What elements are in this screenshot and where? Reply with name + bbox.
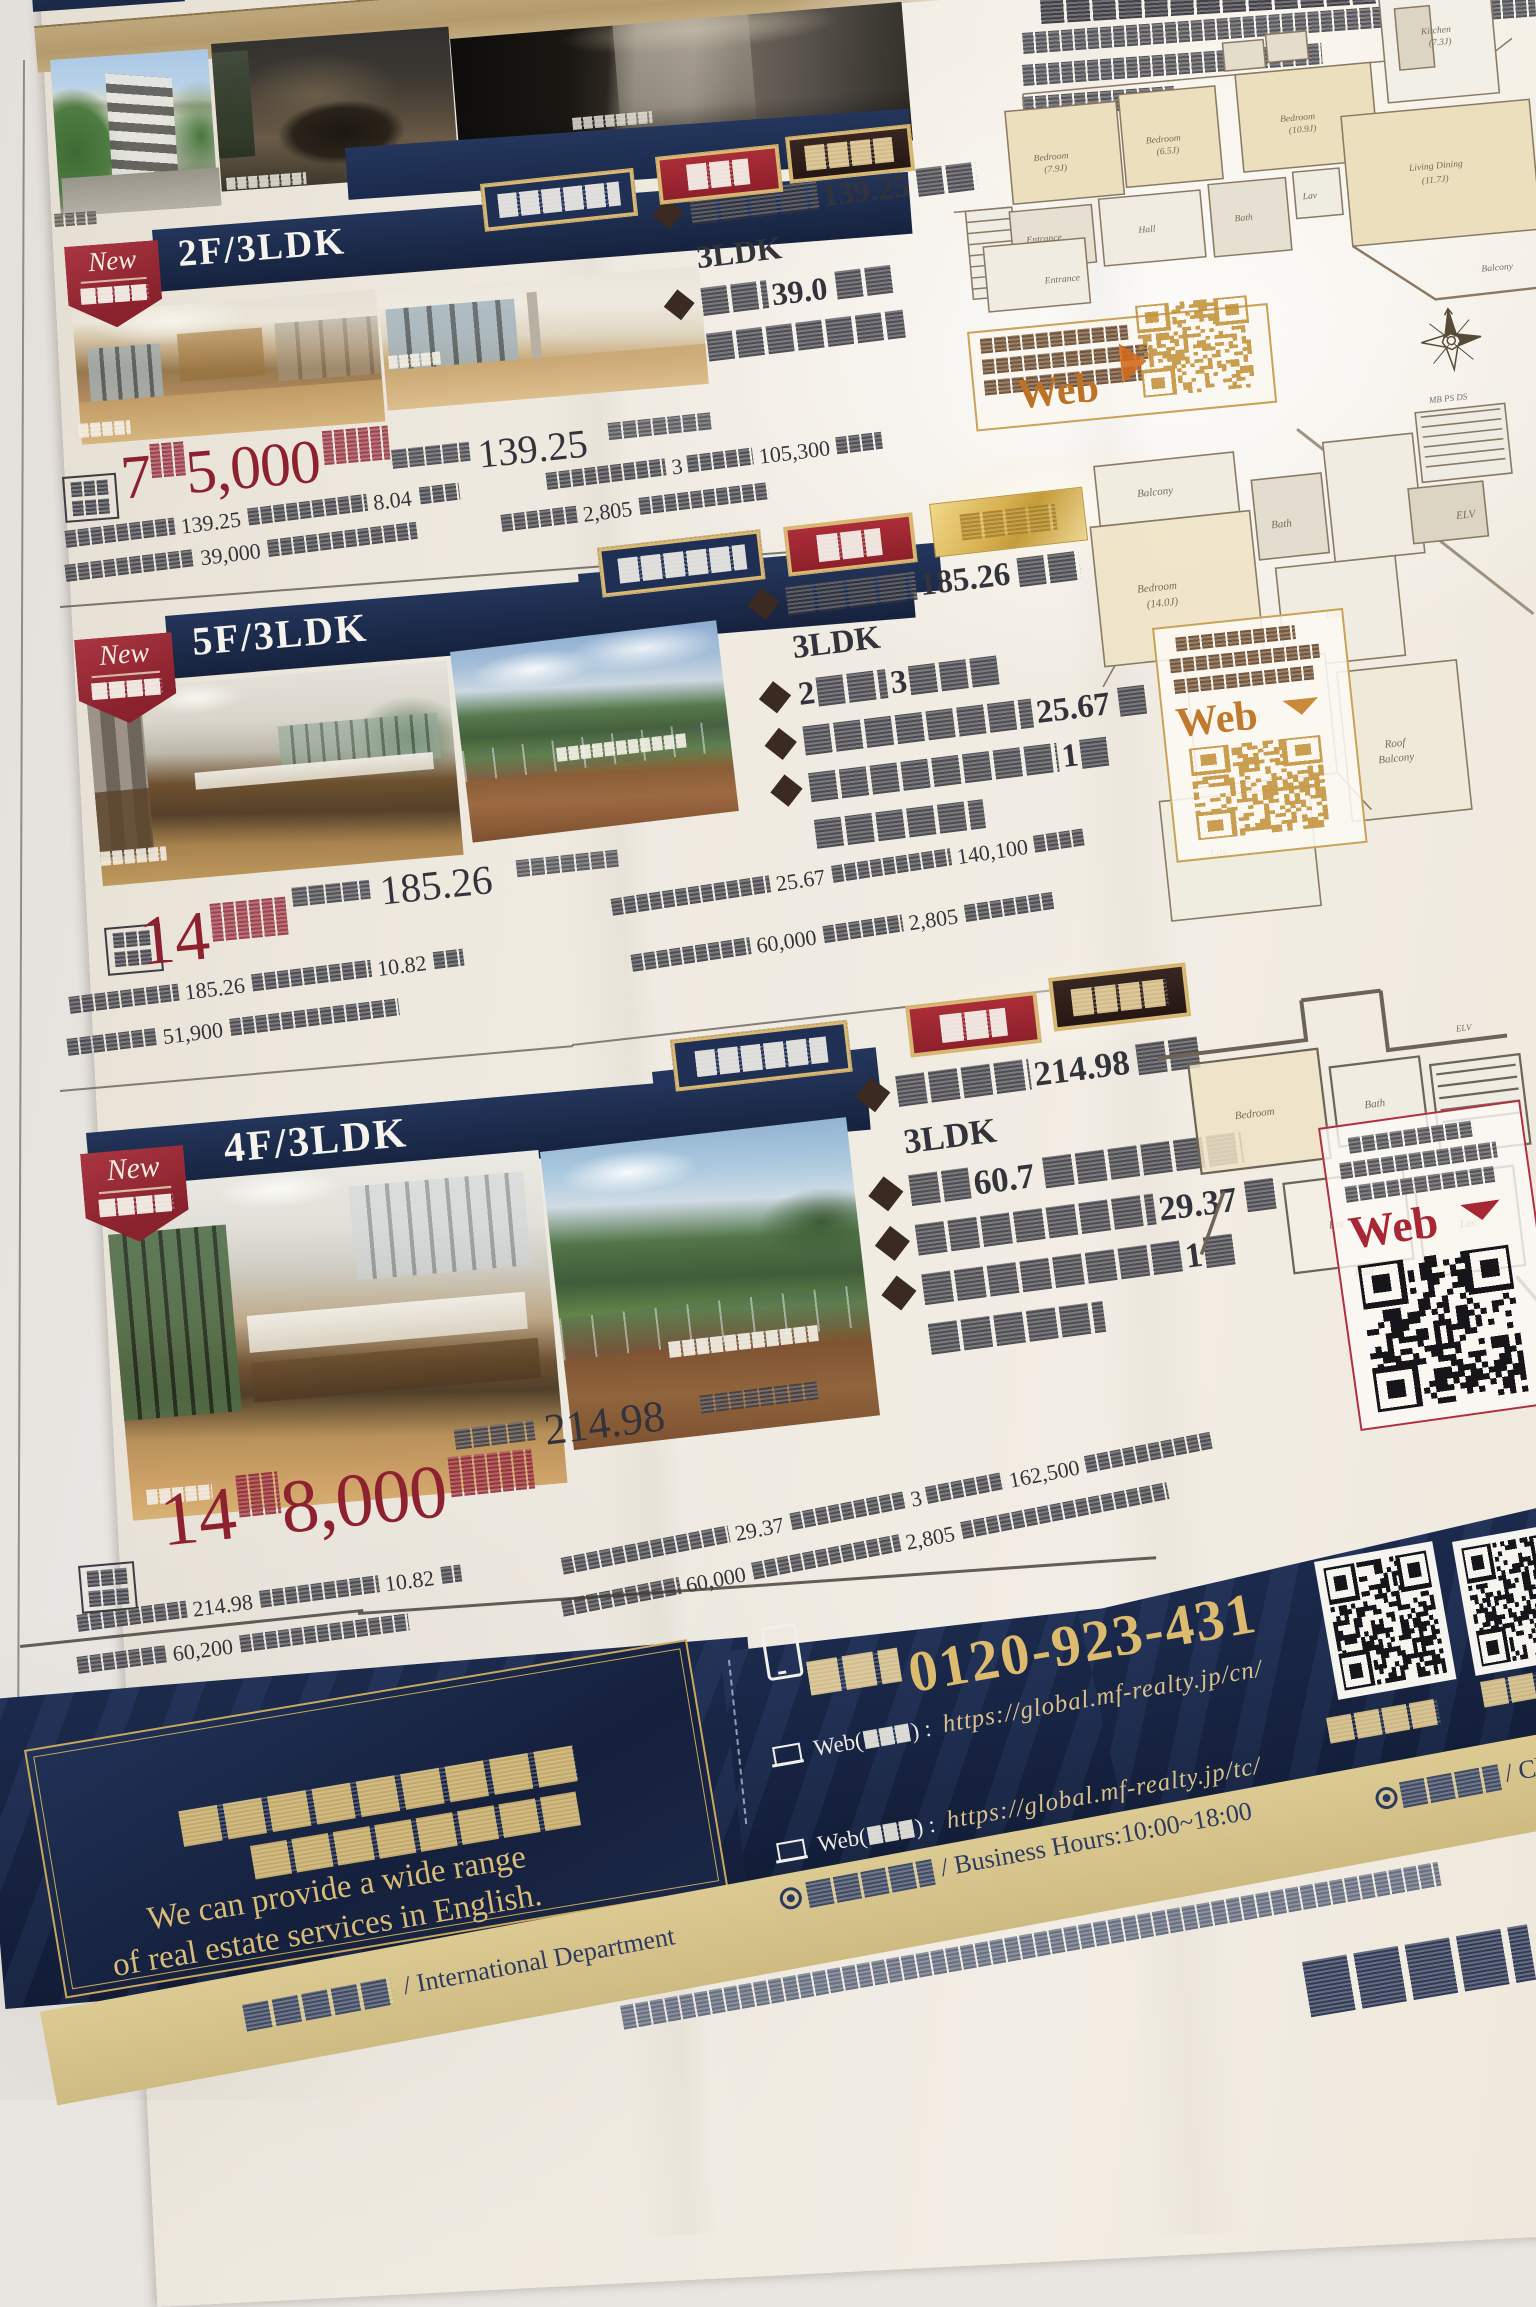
svg-text:MB PS DS: MB PS DS <box>1427 391 1468 405</box>
svg-text:Roof: Roof <box>1383 736 1408 750</box>
svg-text:ELV: ELV <box>1454 1022 1473 1034</box>
svg-text:Lav: Lav <box>1301 191 1318 202</box>
svg-text:(7.3J): (7.3J) <box>1428 36 1452 49</box>
svg-text:Bath: Bath <box>1364 1097 1387 1112</box>
svg-text:Bath: Bath <box>1271 517 1293 531</box>
svg-text:ELV: ELV <box>1455 508 1478 522</box>
svg-text:Balcony: Balcony <box>1481 262 1514 275</box>
